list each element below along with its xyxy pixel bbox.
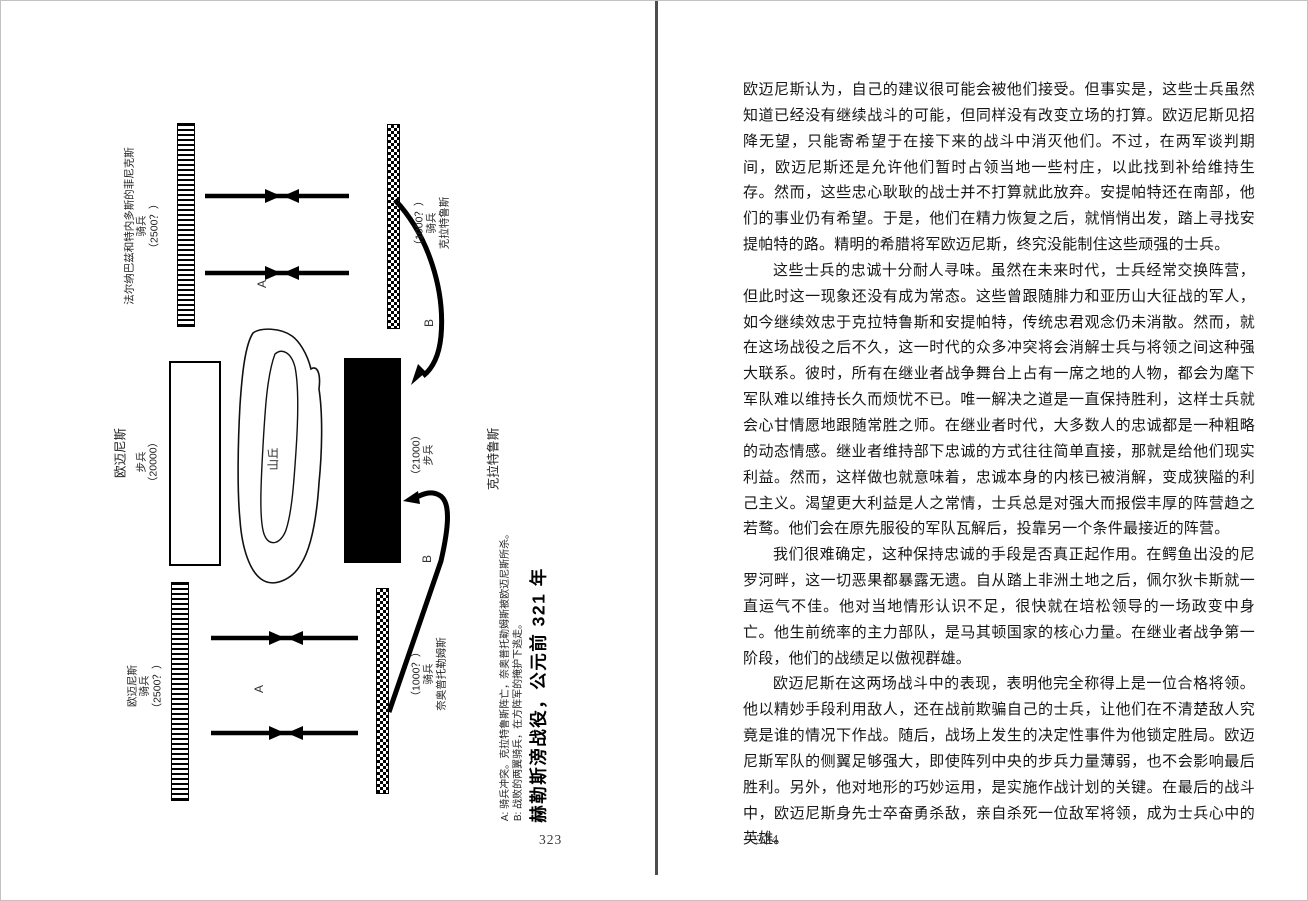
- clash-arrow-top-2: [205, 266, 349, 280]
- diagram-title: 赫勒斯滂战役，公元前 321 年: [529, 567, 550, 822]
- page-number-left: 323: [539, 832, 562, 848]
- paragraph: 这些士兵的忠诚十分耐人寻味。虽然在未来时代，士兵经常交换阵营，但此时这一现象还没…: [743, 259, 1255, 543]
- label-hill: 山丘: [268, 448, 282, 471]
- body-text: 欧迈尼斯认为，自己的建议很可能会被他们接受。但事实是，这些士兵虽然知道已经没有继…: [743, 78, 1255, 853]
- diagram-shapes: [1, 1, 655, 901]
- paragraph: 欧迈尼斯认为，自己的建议很可能会被他们接受。但事实是，这些士兵虽然知道已经没有继…: [743, 78, 1255, 259]
- label-craterus-cavalry: （1000？） 骑兵 克拉特鲁斯: [413, 196, 450, 251]
- marker-a-bottom: A: [252, 685, 266, 693]
- label-line: 骑兵: [136, 147, 148, 305]
- clash-arrow-bottom-1: [211, 631, 358, 645]
- label-line: 克拉特鲁斯: [487, 428, 502, 491]
- clash-arrow-bottom-2: [211, 726, 358, 740]
- label-line: 奈奥普托勒姆斯: [435, 637, 447, 711]
- label-craterus-name: 克拉特鲁斯: [487, 428, 502, 491]
- diagram-note-b: B: 战败的两翼骑兵，在方阵军的掩护下逃走。: [512, 529, 525, 821]
- book-spread: 法尔纳巴兹和特内多斯的菲尼克斯 骑兵 （2500？） （1000？） 骑兵 克拉…: [0, 0, 1308, 901]
- label-line: 山丘: [268, 448, 282, 471]
- marker-b-top: B: [422, 319, 436, 327]
- label-line: 法尔纳巴兹和特内多斯的菲尼克斯: [123, 147, 135, 305]
- label-line: （1000？）: [413, 196, 425, 251]
- label-pharnabazus-cavalry: 法尔纳巴兹和特内多斯的菲尼克斯 骑兵 （2500？）: [123, 147, 160, 305]
- diagram-note-a: A: 骑兵冲突。克拉特鲁斯阵亡，奈奥普托勒姆斯被欧迈尼斯所杀。: [499, 529, 512, 821]
- label-line: （20000）: [148, 437, 160, 487]
- label-craterus-infantry: （21000） 步兵: [411, 430, 436, 480]
- marker-a-top: A: [255, 280, 269, 288]
- label-eumenes-infantry: 步兵 （20000）: [136, 437, 161, 487]
- paragraph: 欧迈尼斯在这两场战斗中的表现，表明他完全称得上是一位合格将领。他以精妙手段利用敌…: [743, 672, 1255, 853]
- paragraph: 我们很难确定，这种保持忠诚的手段是否真正起作用。在鳄鱼出没的尼罗河畔，这一切恶果…: [743, 543, 1255, 672]
- label-line: 步兵: [136, 437, 148, 487]
- clash-arrow-top-1: [205, 189, 349, 203]
- label-eumenes-cavalry: 欧迈尼斯 骑兵 （2500？）: [126, 659, 163, 714]
- label-line: （2500？）: [148, 147, 160, 305]
- label-line: 骑兵: [423, 637, 435, 711]
- label-line: （2500？）: [151, 659, 163, 714]
- label-eumenes-name: 欧迈尼斯: [114, 428, 129, 478]
- diagram-notes: A: 骑兵冲突。克拉特鲁斯阵亡，奈奥普托勒姆斯被欧迈尼斯所杀。 B: 战败的两翼…: [499, 529, 525, 821]
- page-number-right: 324: [756, 832, 779, 848]
- label-line: （1000？）: [410, 637, 422, 711]
- label-line: （21000）: [411, 430, 423, 480]
- label-line: 欧迈尼斯: [114, 428, 129, 478]
- label-line: 骑兵: [139, 659, 151, 714]
- marker-b-bottom: B: [420, 555, 434, 563]
- label-line: 步兵: [423, 430, 435, 480]
- label-line: 克拉特鲁斯: [438, 196, 450, 251]
- page-divider: [655, 1, 658, 875]
- label-neoptolemus-cavalry: （1000？） 骑兵 奈奥普托勒姆斯: [410, 637, 447, 711]
- label-line: 欧迈尼斯: [126, 659, 138, 714]
- label-line: 骑兵: [426, 196, 438, 251]
